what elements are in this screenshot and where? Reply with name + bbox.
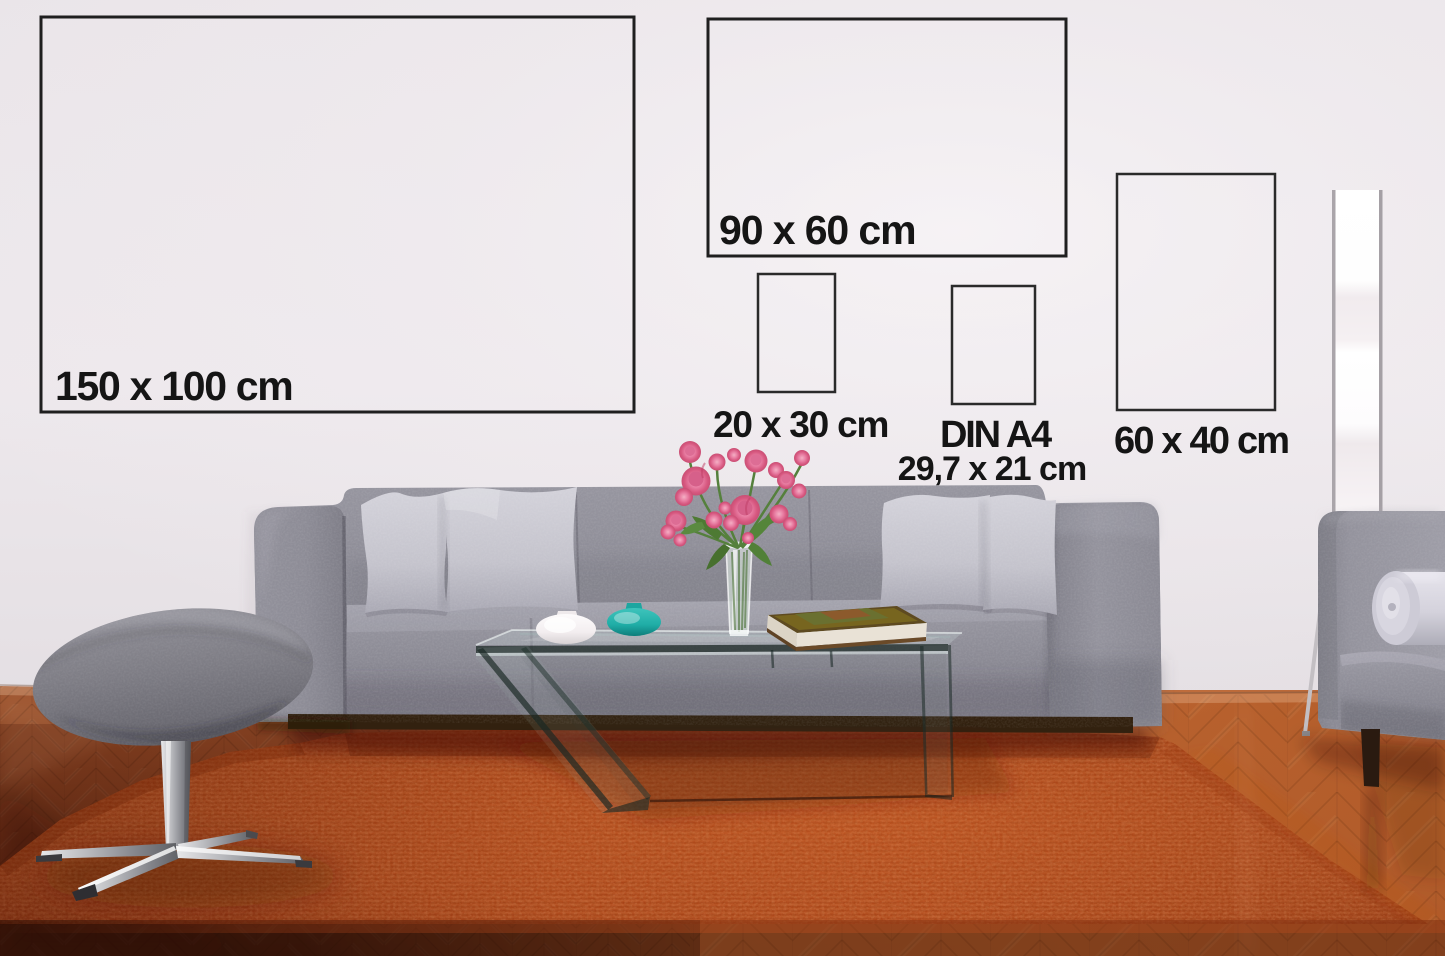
svg-text:60 x 40 cm: 60 x 40 cm bbox=[1114, 420, 1288, 462]
svg-text:90 x 60 cm: 90 x 60 cm bbox=[719, 207, 915, 253]
svg-text:20 x 30 cm: 20 x 30 cm bbox=[713, 404, 888, 445]
svg-text:29,7 x 21 cm: 29,7 x 21 cm bbox=[898, 450, 1086, 488]
svg-text:150 x 100 cm: 150 x 100 cm bbox=[55, 363, 292, 409]
